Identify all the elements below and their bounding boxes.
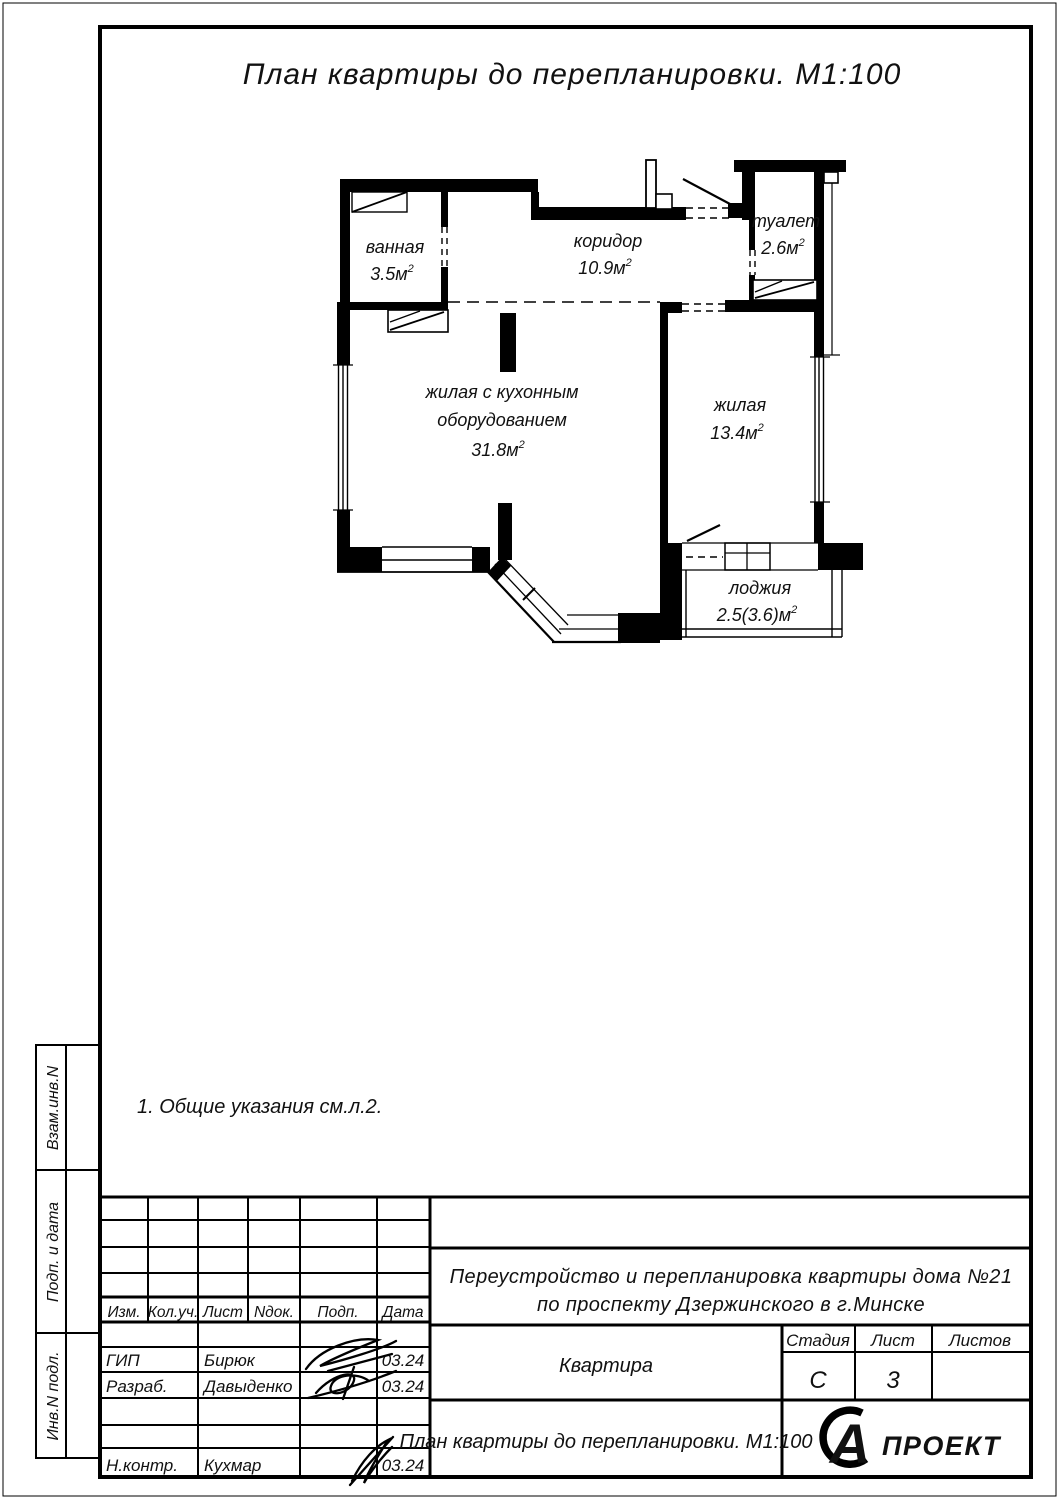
room-area-living-kitchen: 31.8м2 [471,439,525,460]
room-area-loggia: 2.5(3.6)м2 [716,604,798,625]
row-nkontr-name: Кухмар [204,1456,261,1475]
sidebar-label-vzam: Взам.инв.N [45,1065,62,1150]
logo-letter: А [828,1412,870,1475]
sidebar-label-inv: Инв.N подл. [45,1351,62,1440]
general-note: 1. Общие указания см.л.2. [137,1096,382,1118]
room-label-living-kitchen-1: жилая с кухонным [425,382,579,402]
row-razrab-name: Давыденко [202,1377,293,1396]
drawing-canvas: План квартиры до перепланировки. М1:100 … [0,0,1060,1500]
entry-niche [656,194,672,209]
row-gip-role: ГИП [106,1351,140,1370]
row-nkontr-date: 03.24 [382,1456,425,1475]
vent-shaft [646,160,656,208]
row-gip-name: Бирюк [204,1351,256,1370]
sheet-value: 3 [886,1367,900,1394]
floor-plan: ванная 3.5м2 коридор 10.9м2 туалет 2.6м2… [333,160,863,643]
stage-label: Стадия [786,1331,850,1350]
room-label-bathroom: ванная [366,237,425,257]
door-swings [683,179,730,541]
stage-value: С [809,1367,827,1394]
room-label-living-kitchen-2: оборудованием [437,410,567,430]
wall-lip [824,172,838,183]
title-block: Изм. Кол.уч. Лист Nдок. Подп. Дата ГИП Б… [100,1197,1031,1485]
sheet-label: Лист [870,1331,915,1350]
sidebar-block: Взам.инв.N Подп. и дата Инв.N подл. [36,1045,100,1458]
room-area-bathroom: 3.5м2 [370,263,414,284]
row-razrab-role: Разраб. [106,1377,168,1396]
room-area-toilet: 2.6м2 [760,237,805,258]
room-label-living: жилая [713,395,767,415]
room-label-toilet: туалет [752,211,820,231]
project-name-line1: Переустройство и перепланировка квартиры… [450,1266,1013,1288]
col-list: Лист [202,1304,243,1321]
room-area-living: 13.4м2 [710,422,764,443]
sheets-label: Листов [948,1331,1011,1350]
drawing-title: План квартиры до перепланировки. М1:100 [399,1431,812,1453]
drawing-frame [100,27,1031,1477]
room-area-corridor: 10.9м2 [578,257,632,278]
col-izm: Изм. [107,1304,140,1321]
sidebar-label-podp: Подп. и дата [45,1202,62,1302]
logo-text: ПРОЕКТ [882,1431,1002,1461]
col-ndok: Nдок. [254,1304,294,1321]
blueprint-sheet: План квартиры до перепланировки. М1:100 … [0,0,1060,1500]
col-podp: Подп. [317,1304,358,1321]
col-koluch: Кол.уч. [148,1304,199,1321]
loggia-door-swing [687,525,720,541]
room-label-corridor: коридор [574,231,643,251]
project-name-line2: по проспекту Дзержинского в г.Минске [537,1294,925,1316]
col-data: Дата [381,1304,424,1321]
room-label-loggia: лоджия [728,578,792,598]
entry-door-swing [683,179,730,204]
company-logo: А ПРОЕКТ [823,1410,1002,1475]
object-name: Квартира [559,1355,653,1377]
row-nkontr-role: Н.контр. [106,1456,178,1475]
page-title: План квартиры до перепланировки. М1:100 [243,58,902,91]
row-razrab-date: 03.24 [382,1377,425,1396]
